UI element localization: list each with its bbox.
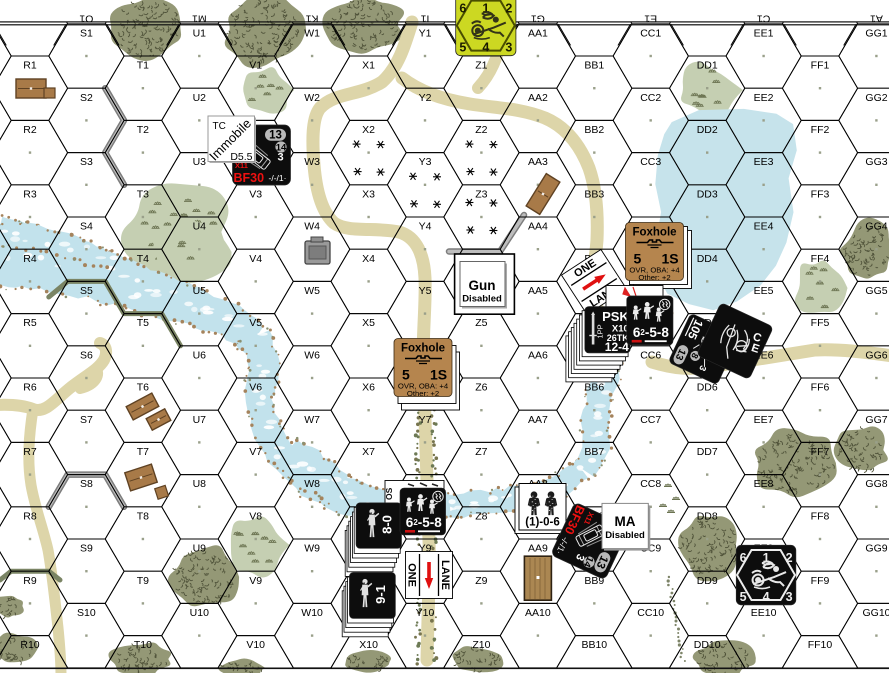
svg-text:EE10: EE10 xyxy=(751,607,777,619)
svg-text:DD9: DD9 xyxy=(697,575,718,587)
svg-text:S8: S8 xyxy=(80,478,93,490)
svg-text:I1: I1 xyxy=(420,13,429,25)
svg-text:CC6: CC6 xyxy=(640,349,661,361)
svg-text:5: 5 xyxy=(402,367,410,383)
svg-text:BB3: BB3 xyxy=(584,188,604,200)
svg-text:D5.5: D5.5 xyxy=(230,151,252,163)
svg-text:U7: U7 xyxy=(193,414,207,426)
svg-text:CC8: CC8 xyxy=(640,478,661,490)
svg-text:Other: +2: Other: +2 xyxy=(407,389,439,398)
svg-text:U2: U2 xyxy=(193,92,207,104)
svg-text:DD10: DD10 xyxy=(694,639,721,651)
svg-text:4: 4 xyxy=(482,41,489,55)
svg-text:AA6: AA6 xyxy=(528,349,548,361)
svg-text:6: 6 xyxy=(459,2,466,16)
svg-text:W4: W4 xyxy=(304,221,320,233)
svg-text:V8: V8 xyxy=(249,510,262,522)
svg-text:X4: X4 xyxy=(362,253,375,265)
svg-text:MA: MA xyxy=(615,514,636,529)
svg-text:W6: W6 xyxy=(304,349,320,361)
svg-text:O1: O1 xyxy=(79,13,93,25)
svg-text:EE7: EE7 xyxy=(754,414,774,426)
svg-text:U5: U5 xyxy=(193,285,207,297)
svg-text:Z6: Z6 xyxy=(475,382,487,394)
svg-text:DD7: DD7 xyxy=(697,446,718,458)
svg-text:U6: U6 xyxy=(193,349,207,361)
svg-text:2: 2 xyxy=(505,2,512,16)
svg-text:DD2: DD2 xyxy=(697,124,718,136)
svg-text:X7: X7 xyxy=(362,446,375,458)
svg-text:GG9: GG9 xyxy=(865,543,887,555)
svg-text:E1: E1 xyxy=(644,13,657,25)
svg-text:62-5-8: 62-5-8 xyxy=(406,515,442,530)
svg-text:Foxhole: Foxhole xyxy=(401,343,445,355)
svg-text:W1: W1 xyxy=(304,27,320,39)
svg-text:AA1: AA1 xyxy=(528,27,548,39)
svg-text:S9: S9 xyxy=(80,543,93,555)
svg-text:5: 5 xyxy=(634,251,642,267)
svg-text:1S: 1S xyxy=(430,367,447,383)
svg-text:S4: S4 xyxy=(80,221,93,233)
svg-text:T10: T10 xyxy=(134,639,152,651)
svg-text:FF2: FF2 xyxy=(811,124,830,136)
svg-text:CC10: CC10 xyxy=(637,607,664,619)
svg-text:BB10: BB10 xyxy=(581,639,607,651)
svg-text:Y2: Y2 xyxy=(419,92,432,104)
svg-text:LANE: LANE xyxy=(439,560,451,590)
svg-text:FF7: FF7 xyxy=(811,446,830,458)
svg-text:V4: V4 xyxy=(249,253,262,265)
svg-text:AA9: AA9 xyxy=(528,543,548,555)
svg-text:Z2: Z2 xyxy=(475,124,487,136)
svg-text:3: 3 xyxy=(505,41,512,55)
svg-text:(1)-0-6: (1)-0-6 xyxy=(525,517,560,529)
svg-text:FF9: FF9 xyxy=(811,575,830,587)
svg-text:X5: X5 xyxy=(362,317,375,329)
svg-text:EE4: EE4 xyxy=(754,221,774,233)
svg-text:T9: T9 xyxy=(137,575,149,587)
svg-text:Y3: Y3 xyxy=(419,156,432,168)
svg-text:3: 3 xyxy=(786,590,793,604)
svg-text:S1: S1 xyxy=(80,27,93,39)
svg-text:CC1: CC1 xyxy=(640,27,661,39)
svg-text:G1: G1 xyxy=(531,13,545,25)
svg-text:Other: +2: Other: +2 xyxy=(638,273,670,282)
svg-text:6: 6 xyxy=(740,551,747,565)
svg-text:X1: X1 xyxy=(362,60,375,72)
svg-text:Y5: Y5 xyxy=(419,285,432,297)
svg-text:Z5: Z5 xyxy=(475,317,487,329)
svg-text:W3: W3 xyxy=(304,156,320,168)
svg-text:GG8: GG8 xyxy=(865,478,887,490)
svg-text:S10: S10 xyxy=(77,607,96,619)
svg-text:GG10: GG10 xyxy=(862,607,889,619)
svg-text:AA7: AA7 xyxy=(528,414,548,426)
svg-text:R8: R8 xyxy=(23,510,37,522)
svg-text:BB2: BB2 xyxy=(584,124,604,136)
svg-text:S2: S2 xyxy=(80,92,93,104)
svg-text:T5: T5 xyxy=(137,317,149,329)
svg-text:W10: W10 xyxy=(301,607,323,619)
svg-text:GG1: GG1 xyxy=(865,27,887,39)
svg-text:GG2: GG2 xyxy=(865,92,887,104)
svg-text:Y7: Y7 xyxy=(419,414,432,426)
svg-text:W7: W7 xyxy=(304,414,320,426)
svg-text:U8: U8 xyxy=(193,478,207,490)
svg-text:3: 3 xyxy=(277,152,283,164)
svg-text:2: 2 xyxy=(786,551,793,565)
svg-text:FF1: FF1 xyxy=(811,60,830,72)
svg-text:AA5: AA5 xyxy=(528,285,548,297)
svg-text:T6: T6 xyxy=(137,382,149,394)
svg-text:U3: U3 xyxy=(193,156,207,168)
svg-text:GG3: GG3 xyxy=(865,156,887,168)
svg-text:U9: U9 xyxy=(193,543,207,555)
svg-text:BB7: BB7 xyxy=(584,446,604,458)
svg-text:U10: U10 xyxy=(190,607,209,619)
svg-text:5: 5 xyxy=(740,590,747,604)
svg-text:DD3: DD3 xyxy=(697,188,718,200)
svg-text:Gun: Gun xyxy=(469,278,496,293)
svg-text:GG7: GG7 xyxy=(865,414,887,426)
svg-text:-/-/1·: -/-/1· xyxy=(269,173,287,183)
svg-text:W2: W2 xyxy=(304,92,320,104)
svg-text:Y1: Y1 xyxy=(419,27,432,39)
svg-text:X6: X6 xyxy=(362,382,375,394)
svg-text:9-1: 9-1 xyxy=(373,585,388,604)
svg-text:Z7: Z7 xyxy=(475,446,487,458)
svg-text:OS: OS xyxy=(384,487,394,500)
svg-text:S7: S7 xyxy=(80,414,93,426)
svg-text:T3: T3 xyxy=(137,188,149,200)
svg-text:Z3: Z3 xyxy=(475,188,487,200)
svg-text:K1: K1 xyxy=(306,13,319,25)
svg-text:A1: A1 xyxy=(870,13,883,25)
svg-text:FF4: FF4 xyxy=(811,253,830,265)
svg-text:EE2: EE2 xyxy=(754,92,774,104)
svg-text:R6: R6 xyxy=(23,382,37,394)
svg-text:CC7: CC7 xyxy=(640,414,661,426)
svg-text:13: 13 xyxy=(269,130,282,142)
svg-text:1PP: 1PP xyxy=(595,324,604,338)
svg-text:ONE: ONE xyxy=(406,563,418,587)
svg-text:4: 4 xyxy=(763,590,770,604)
svg-text:T1: T1 xyxy=(137,60,149,72)
svg-text:U1: U1 xyxy=(193,27,207,39)
svg-text:TC: TC xyxy=(213,121,226,132)
svg-text:AA4: AA4 xyxy=(528,221,548,233)
svg-text:AA10: AA10 xyxy=(525,607,551,619)
svg-text:X10: X10 xyxy=(359,639,378,651)
svg-text:X2: X2 xyxy=(362,124,375,136)
svg-text:V3: V3 xyxy=(249,188,262,200)
svg-text:Z10: Z10 xyxy=(472,639,490,651)
svg-text:5: 5 xyxy=(459,41,466,55)
svg-text:DD8: DD8 xyxy=(697,510,718,522)
svg-text:R7: R7 xyxy=(23,446,37,458)
svg-text:R3: R3 xyxy=(23,188,37,200)
svg-text:T8: T8 xyxy=(137,510,149,522)
svg-text:AA2: AA2 xyxy=(528,92,548,104)
svg-text:V9: V9 xyxy=(249,575,262,587)
svg-text:W9: W9 xyxy=(304,543,320,555)
svg-text:EE5: EE5 xyxy=(754,285,774,297)
svg-text:GG4: GG4 xyxy=(865,221,887,233)
svg-text:BB6: BB6 xyxy=(584,382,604,394)
svg-text:T7: T7 xyxy=(137,446,149,458)
svg-text:AA3: AA3 xyxy=(528,156,548,168)
svg-text:CC2: CC2 xyxy=(640,92,661,104)
svg-text:R1: R1 xyxy=(23,60,37,72)
svg-text:FF8: FF8 xyxy=(811,510,830,522)
svg-text:12-4: 12-4 xyxy=(605,340,629,354)
svg-text:C1: C1 xyxy=(757,13,771,25)
svg-text:FF10: FF10 xyxy=(808,639,833,651)
svg-text:V5: V5 xyxy=(249,317,262,329)
svg-text:Disabled: Disabled xyxy=(462,294,502,305)
svg-text:EE1: EE1 xyxy=(754,27,774,39)
svg-text:Z9: Z9 xyxy=(475,575,487,587)
svg-text:M1: M1 xyxy=(192,13,207,25)
svg-text:62-5-8: 62-5-8 xyxy=(633,325,669,340)
svg-text:EE8: EE8 xyxy=(754,478,774,490)
svg-text:S3: S3 xyxy=(80,156,93,168)
svg-text:U4: U4 xyxy=(193,221,207,233)
svg-text:V10: V10 xyxy=(246,639,265,651)
svg-text:GG6: GG6 xyxy=(865,349,887,361)
svg-text:R9: R9 xyxy=(23,575,37,587)
svg-text:R10: R10 xyxy=(20,639,39,651)
svg-text:8-0: 8-0 xyxy=(380,515,395,534)
svg-text:X3: X3 xyxy=(362,188,375,200)
svg-text:EE3: EE3 xyxy=(754,156,774,168)
svg-text:Z1: Z1 xyxy=(475,60,487,72)
svg-text:V6: V6 xyxy=(249,382,262,394)
svg-text:GG5: GG5 xyxy=(865,285,887,297)
svg-text:W8: W8 xyxy=(304,478,320,490)
svg-text:R5: R5 xyxy=(23,317,37,329)
svg-text:Disabled: Disabled xyxy=(605,530,645,541)
svg-text:BB1: BB1 xyxy=(584,60,604,72)
svg-text:Y10: Y10 xyxy=(416,607,435,619)
svg-text:R4: R4 xyxy=(23,253,37,265)
svg-text:CC3: CC3 xyxy=(640,156,661,168)
svg-text:FF6: FF6 xyxy=(811,382,830,394)
svg-text:Z8: Z8 xyxy=(475,510,487,522)
svg-text:FF5: FF5 xyxy=(811,317,830,329)
svg-text:V1: V1 xyxy=(249,60,262,72)
svg-text:W5: W5 xyxy=(304,285,320,297)
svg-text:Y4: Y4 xyxy=(419,221,432,233)
svg-text:BF30: BF30 xyxy=(234,171,265,185)
svg-text:S6: S6 xyxy=(80,349,93,361)
svg-text:T2: T2 xyxy=(137,124,149,136)
svg-text:S5: S5 xyxy=(80,285,93,297)
svg-text:PSK: PSK xyxy=(602,309,629,324)
svg-text:1S: 1S xyxy=(662,251,679,267)
svg-text:T4: T4 xyxy=(137,253,149,265)
svg-text:DD4: DD4 xyxy=(697,253,718,265)
svg-text:FF3: FF3 xyxy=(811,188,830,200)
svg-text:R2: R2 xyxy=(23,124,37,136)
svg-text:Foxhole: Foxhole xyxy=(632,227,676,239)
svg-text:V7: V7 xyxy=(249,446,262,458)
svg-text:DD1: DD1 xyxy=(697,60,718,72)
